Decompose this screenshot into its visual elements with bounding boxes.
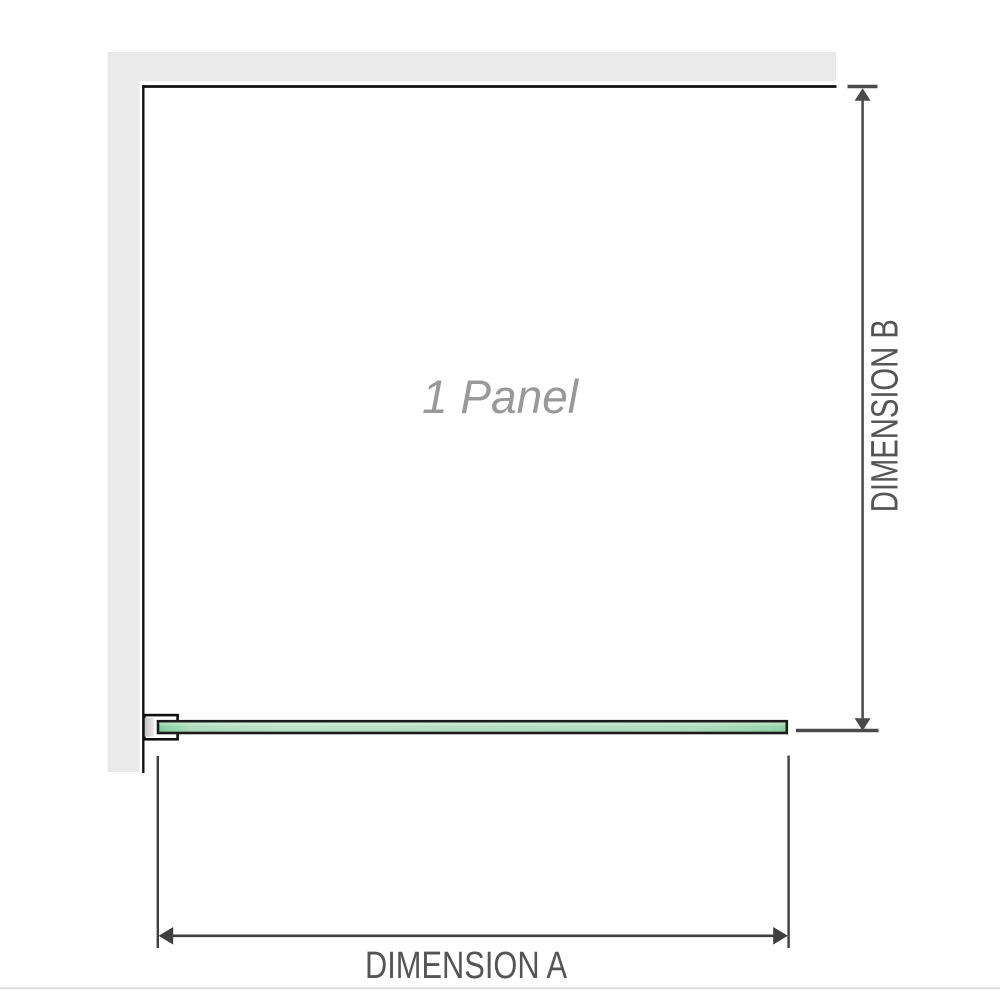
svg-text:DIMENSION A: DIMENSION A	[365, 945, 568, 987]
svg-text:1 Panel: 1 Panel	[422, 370, 580, 423]
svg-text:DIMENSION B: DIMENSION B	[865, 319, 907, 512]
